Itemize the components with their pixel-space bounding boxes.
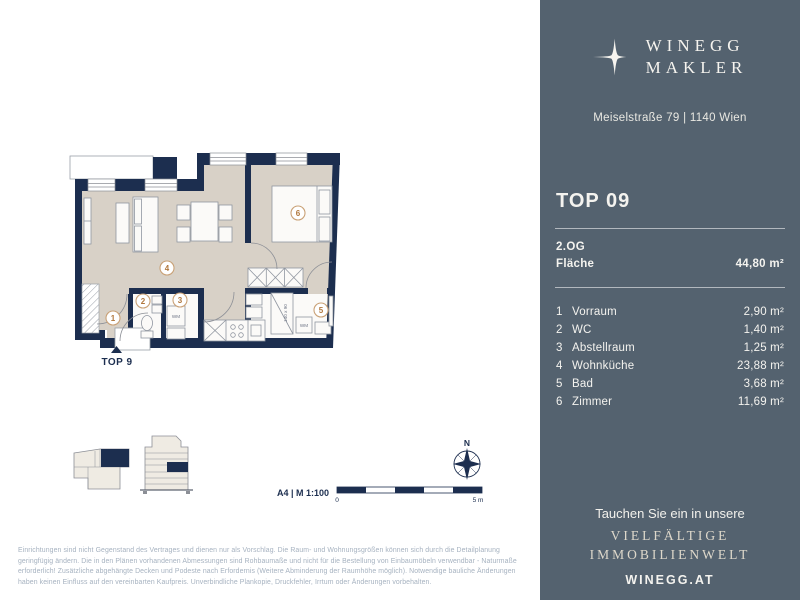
room-row: 4 Wohnküche 23,88 m²: [556, 360, 784, 372]
flyer-page: WM WM 140 x 90 1 2 3 4 5 6 TOP 9: [0, 0, 800, 600]
footer-website: WINEGG.AT: [540, 573, 800, 587]
brand-logo: WINEGG MAKLER: [540, 34, 800, 80]
shower-dimension: 140 x 90: [283, 304, 288, 322]
room-marker-4: 4: [165, 264, 170, 273]
divider-bottom: [555, 287, 785, 288]
room-marker-5: 5: [319, 306, 324, 315]
room-marker-3: 3: [178, 296, 183, 305]
room-number: 4: [556, 360, 572, 372]
room-marker-6: 6: [296, 209, 301, 218]
staircase-hatch: [82, 284, 99, 333]
entrance-label-text: TOP 9: [101, 357, 132, 368]
disclaimer-text: Einrichtungen sind nicht Gegenstand des …: [18, 546, 526, 589]
room-name: Wohnküche: [572, 360, 737, 372]
room-number: 6: [556, 396, 572, 408]
room-area: 1,40 m²: [744, 324, 784, 336]
scale-bar: A4 | M 1:100 0 5 m: [277, 487, 483, 504]
room-row: 3 Abstellraum 1,25 m²: [556, 342, 784, 354]
scale-end-label: 5 m: [473, 497, 484, 504]
room-list: 1 Vorraum 2,90 m² 2 WC 1,40 m² 3 Abstell…: [556, 306, 784, 414]
winegg-star-icon: [593, 34, 633, 80]
info-panel: WINEGG MAKLER Meiselstraße 79 | 1140 Wie…: [540, 0, 800, 600]
wm-label-bath: WM: [300, 323, 308, 328]
footer-tagline: Tauchen Sie ein in unsere: [540, 506, 800, 521]
room-name: Zimmer: [572, 396, 738, 408]
compass-north-label: N: [464, 438, 470, 448]
room-area: 23,88 m²: [737, 360, 784, 372]
area-value: 44,80 m²: [736, 258, 784, 270]
scale-start-label: 0: [335, 497, 339, 504]
unit-floor: 2.OG: [556, 241, 585, 253]
room-name: Abstellraum: [572, 342, 744, 354]
footer-headline-1: VIELFÄLTIGE: [540, 528, 800, 544]
room-row: 1 Vorraum 2,90 m²: [556, 306, 784, 318]
room-number: 1: [556, 306, 572, 318]
brand-name-line1: WINEGG: [646, 35, 748, 57]
unit-title: TOP 09: [556, 190, 630, 213]
room-marker-1: 1: [111, 314, 116, 323]
site-plan-floorplate: [74, 449, 129, 489]
footer-headline-2: IMMOBILIENWELT: [540, 547, 800, 563]
site-plan-unit-highlight: [101, 449, 129, 467]
room-row: 2 WC 1,40 m²: [556, 324, 784, 336]
room-area: 2,90 m²: [744, 306, 784, 318]
wm-label-storage: WM: [172, 314, 180, 319]
room-number: 2: [556, 324, 572, 336]
room-name: Bad: [572, 378, 744, 390]
room-number: 3: [556, 342, 572, 354]
room-row: 5 Bad 3,68 m²: [556, 378, 784, 390]
balcony-outline: [70, 156, 177, 179]
floor-plan: WM WM 140 x 90 1 2 3 4 5 6 TOP 9: [0, 0, 540, 600]
room-name: Vorraum: [572, 306, 744, 318]
area-label: Fläche: [556, 258, 594, 270]
building-section: [140, 436, 193, 494]
room-number: 5: [556, 378, 572, 390]
room-name: WC: [572, 324, 744, 336]
room-area: 1,25 m²: [744, 342, 784, 354]
room-area: 11,69 m²: [738, 396, 784, 408]
unit-area-row: Fläche 44,80 m²: [556, 258, 784, 270]
scale-label: A4 | M 1:100: [277, 488, 329, 498]
property-address: Meiselstraße 79 | 1140 Wien: [540, 112, 800, 124]
brand-name: WINEGG MAKLER: [646, 35, 748, 79]
section-unit-highlight: [167, 462, 188, 472]
brand-name-line2: MAKLER: [646, 57, 748, 79]
room-area: 3,68 m²: [744, 378, 784, 390]
room-marker-2: 2: [141, 297, 146, 306]
divider-top: [555, 228, 785, 229]
room-row: 6 Zimmer 11,69 m²: [556, 396, 784, 408]
compass-icon: N: [453, 438, 481, 480]
